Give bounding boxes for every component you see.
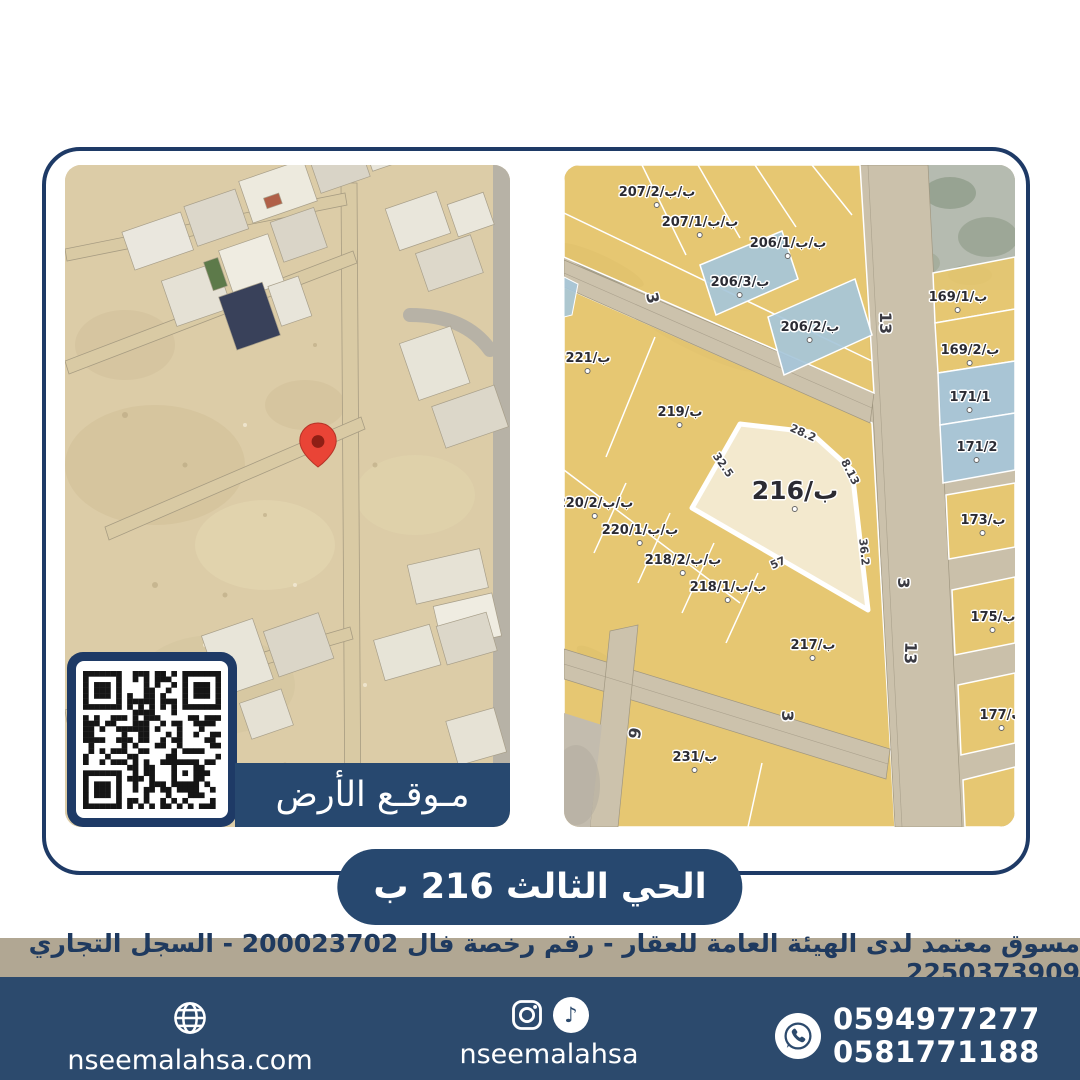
phone-column: 0594977277 0581771188 (775, 1003, 1040, 1070)
website-column: nseemalahsa.com (60, 999, 320, 1076)
tiktok-icon[interactable]: ♪ (553, 997, 589, 1033)
satellite-map: مـوقـع الأرض (65, 165, 510, 827)
globe-icon (171, 999, 209, 1037)
district-banner: الحي الثالث 216 ب (337, 849, 742, 925)
phone-number-1[interactable]: 0594977277 (833, 1003, 1040, 1036)
location-label: مـوقـع الأرض (275, 775, 469, 815)
flyer-page: مـوقـع الأرض (0, 0, 1080, 1080)
whatsapp-icon[interactable] (775, 1013, 821, 1059)
social-column: ♪ nseemalahsa (429, 995, 669, 1070)
instagram-icon[interactable] (509, 997, 545, 1033)
qr-code (67, 652, 237, 827)
website-url[interactable]: nseemalahsa.com (60, 1045, 320, 1076)
parcel-map-art (564, 165, 1015, 827)
parcel-map: ب/ب/207/2ب/ب/207/1ب/ب/206/1ب/206/3ب/206/… (564, 165, 1015, 827)
social-handle[interactable]: nseemalahsa (429, 1039, 669, 1070)
qr-code-pattern (83, 671, 221, 809)
phone-number-2[interactable]: 0581771188 (833, 1036, 1040, 1069)
license-strip: مسوق معتمد لدى الهيئة العامة للعقار - رق… (0, 938, 1080, 977)
location-label-bar: مـوقـع الأرض (235, 763, 510, 827)
footer-bar: nseemalahsa.com ♪ nseemalahsa (0, 977, 1080, 1080)
district-banner-text: الحي الثالث 216 ب (373, 867, 706, 907)
